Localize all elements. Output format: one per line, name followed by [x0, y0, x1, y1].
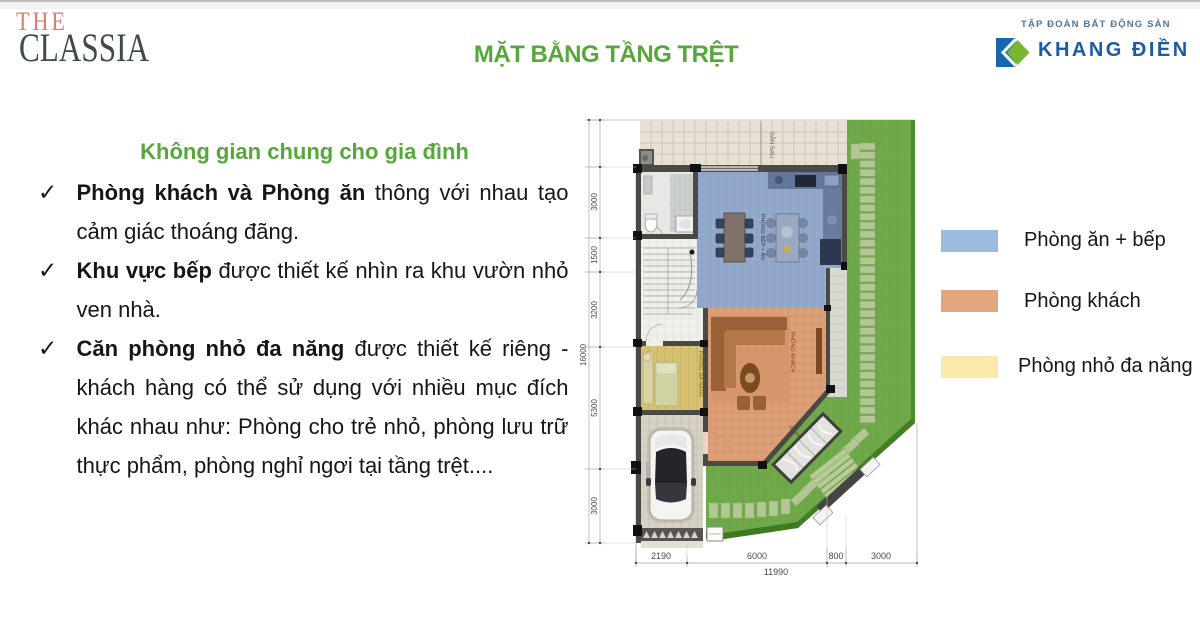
- svg-text:PHÒNG BẾP + ĂN: PHÒNG BẾP + ĂN: [759, 214, 766, 261]
- svg-text:6000: 6000: [747, 551, 767, 561]
- svg-text:11990: 11990: [764, 567, 788, 577]
- svg-text:3000: 3000: [590, 193, 599, 211]
- svg-text:800: 800: [828, 551, 843, 561]
- svg-text:SÂN SAU: SÂN SAU: [768, 132, 775, 158]
- svg-text:5300: 5300: [590, 399, 599, 417]
- svg-text:16000: 16000: [579, 343, 588, 366]
- svg-text:3000: 3000: [590, 497, 599, 515]
- svg-text:1500: 1500: [590, 246, 599, 264]
- svg-text:2190: 2190: [651, 551, 671, 561]
- svg-text:PHÒNG KHÁCH: PHÒNG KHÁCH: [789, 332, 796, 373]
- svg-text:3000: 3000: [871, 551, 891, 561]
- svg-text:3200: 3200: [590, 301, 599, 319]
- svg-text:PHÒNG ĐA NĂNG: PHÒNG ĐA NĂNG: [697, 351, 704, 397]
